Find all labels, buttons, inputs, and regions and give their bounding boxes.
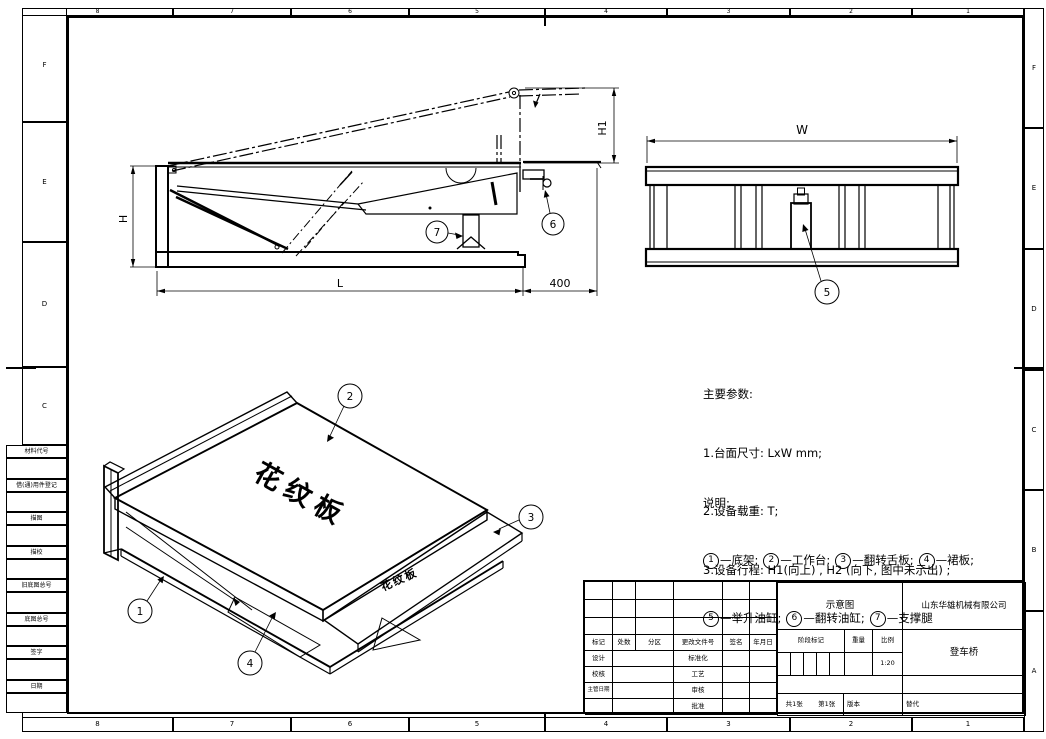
zone-left-e: E: [22, 122, 67, 242]
stage-box: [777, 652, 791, 676]
legend-title: 说明:: [703, 495, 979, 512]
tb-cell: [636, 618, 674, 635]
header-count: 处数: [613, 635, 636, 651]
company-cell: 山东华雄机械有限公司: [902, 582, 1026, 630]
zone-bottom-7: 7: [173, 717, 291, 732]
zone-top-3: 3: [667, 8, 790, 16]
tb-cell: [750, 618, 777, 635]
zone-right-b: B: [1024, 490, 1044, 611]
product-name-cell: 登车桥: [902, 629, 1026, 676]
zone-bottom-5: 5: [409, 717, 545, 732]
tb-cell: [723, 618, 750, 635]
legend-item: 3—翻转舌板;: [835, 551, 913, 571]
legend-label: 裙板: [947, 551, 970, 571]
tb-cell: [585, 699, 613, 715]
legend-label: 工作台: [792, 551, 827, 571]
change-record-table: 标记 处数 分区 更改文件号 签名 年月日 设计 标准化 校核 工艺 主管日期 …: [585, 582, 777, 715]
zone-bottom-4: 4: [545, 717, 667, 732]
tb-cell: [613, 600, 636, 618]
tb-cell: [636, 582, 674, 600]
zone-bottom-3: 3: [667, 717, 790, 732]
tb-cell: [585, 600, 613, 618]
balloon-num: 1: [703, 553, 719, 569]
zone-top-7: 7: [173, 8, 291, 16]
weight-value-cell: [844, 652, 873, 676]
balloon-num: 2: [763, 553, 779, 569]
header-date: 年月日: [750, 635, 777, 651]
scale-label: 比例: [872, 629, 903, 653]
balloon-num: 4: [919, 553, 935, 569]
label-process: 工艺: [674, 667, 723, 683]
title-block: 标记 处数 分区 更改文件号 签名 年月日 设计 标准化 校核 工艺 主管日期 …: [583, 580, 1024, 714]
zone-right-e: E: [1024, 128, 1044, 249]
legend-item: 2—工作台;: [763, 551, 830, 571]
tb-cell: [613, 699, 674, 715]
tb-cell: [750, 582, 777, 600]
zone-left-f: F: [22, 8, 67, 122]
header-zone: 分区: [636, 635, 674, 651]
margin-field-material-code: 材料代号: [6, 445, 67, 458]
legend-label: 翻转舌板: [864, 551, 910, 571]
legend-dash: —: [780, 551, 792, 571]
margin-field-blank: [6, 525, 67, 546]
tb-cell: [674, 600, 723, 618]
sheet-number: 第1张: [818, 701, 835, 709]
balloon-num: 3: [835, 553, 851, 569]
margin-field-blank: [6, 659, 67, 680]
doc-type-cell: 示意图: [777, 582, 903, 630]
tb-cell: [613, 618, 636, 635]
scale-value-cell: 1:20: [872, 652, 903, 676]
margin-field-old-master-no: 旧底图总号: [6, 579, 67, 592]
tb-cell: [750, 600, 777, 618]
margin-field-borrowed-parts: 借(通)用件登记: [6, 479, 67, 492]
margin-field-tracing: 描图: [6, 512, 67, 525]
label-chief: 主管日期: [585, 683, 613, 699]
margin-field-blank: [6, 492, 67, 512]
margin-field-date: 日期: [6, 680, 67, 693]
legend-sep: ;: [755, 551, 759, 571]
zone-bottom-2: 2: [790, 717, 912, 732]
label-design: 设计: [585, 651, 613, 667]
label-audit: 审核: [674, 683, 723, 699]
legend-item: 4—裙板;: [919, 551, 974, 571]
zone-right-a: A: [1024, 611, 1044, 732]
margin-field-blank: [6, 693, 67, 713]
blank-wide-cell: [777, 675, 903, 694]
tb-cell: [636, 600, 674, 618]
zone-top-2: 2: [790, 8, 912, 16]
header-sign: 签名: [723, 635, 750, 651]
weight-label: 重量: [844, 629, 873, 653]
tb-cell: [585, 618, 613, 635]
header-doc-no: 更改文件号: [674, 635, 723, 651]
legend-sep: ;: [826, 551, 830, 571]
margin-field-master-no: 底图总号: [6, 613, 67, 626]
tb-cell: [723, 582, 750, 600]
legend-dash: —: [936, 551, 948, 571]
blank-wide-cell: [902, 675, 1026, 694]
tb-cell: [674, 618, 723, 635]
stage-mark-label: 阶段标记: [777, 629, 845, 653]
margin-field-blank: [6, 592, 67, 613]
tb-cell: [613, 683, 674, 699]
margin-field-blank: [6, 626, 67, 646]
margin-field-blank: [6, 458, 67, 479]
header-mark: 标记: [585, 635, 613, 651]
tb-cell: [613, 667, 674, 683]
zone-top-6: 6: [291, 8, 409, 16]
drawing-sheet: H H1 L 400 7 6: [0, 0, 1046, 739]
tb-cell: [723, 699, 750, 715]
stage-box: [816, 652, 830, 676]
zone-top-5: 5: [409, 8, 545, 16]
stage-box: [803, 652, 817, 676]
zone-bottom-1: 1: [912, 717, 1024, 732]
label-approve: 批准: [674, 699, 723, 715]
zone-right-f: F: [1024, 8, 1044, 128]
tb-cell: [723, 600, 750, 618]
label-check: 校核: [585, 667, 613, 683]
tb-cell: [723, 683, 750, 699]
margin-field-blank: [6, 559, 67, 579]
replace-cell: 替代: [902, 693, 1026, 716]
zone-left-d: D: [22, 242, 67, 367]
margin-field-signature: 签字: [6, 646, 67, 659]
zone-bottom-6: 6: [291, 717, 409, 732]
tb-cell: [750, 683, 777, 699]
legend-dash: —: [852, 551, 864, 571]
tb-cell: [613, 651, 674, 667]
label-standard: 标准化: [674, 651, 723, 667]
zone-top-4: 4: [545, 8, 667, 16]
version-cell: 版本: [843, 693, 903, 716]
zone-left-c: C: [22, 367, 67, 445]
tb-cell: [585, 582, 613, 600]
tb-cell: [674, 582, 723, 600]
tb-cell: [750, 651, 777, 667]
legend-sep: ;: [970, 551, 974, 571]
stage-box: [790, 652, 804, 676]
zone-right-c: C: [1024, 370, 1044, 490]
tb-cell: [750, 699, 777, 715]
tb-cell: [750, 667, 777, 683]
params-title: 主要参数:: [703, 385, 950, 405]
zone-top-1: 1: [912, 8, 1024, 16]
sheet-total: 共1张: [786, 701, 803, 709]
stage-box: [829, 652, 845, 676]
tb-cell: [723, 651, 750, 667]
legend-label: 底架: [732, 551, 755, 571]
legend-row-1: 1—底架; 2—工作台; 3—翻转舌板; 4—裙板;: [703, 551, 979, 570]
margin-field-tracing-check: 描校: [6, 546, 67, 559]
legend-sep: ;: [910, 551, 914, 571]
legend-item: 1—底架;: [703, 551, 758, 571]
zone-bottom-8: 8: [22, 717, 173, 732]
legend-dash: —: [720, 551, 732, 571]
tb-cell: [723, 667, 750, 683]
tb-cell: [613, 582, 636, 600]
sheet-count-cell: 共1张 第1张: [777, 693, 844, 716]
zone-right-d: D: [1024, 249, 1044, 370]
